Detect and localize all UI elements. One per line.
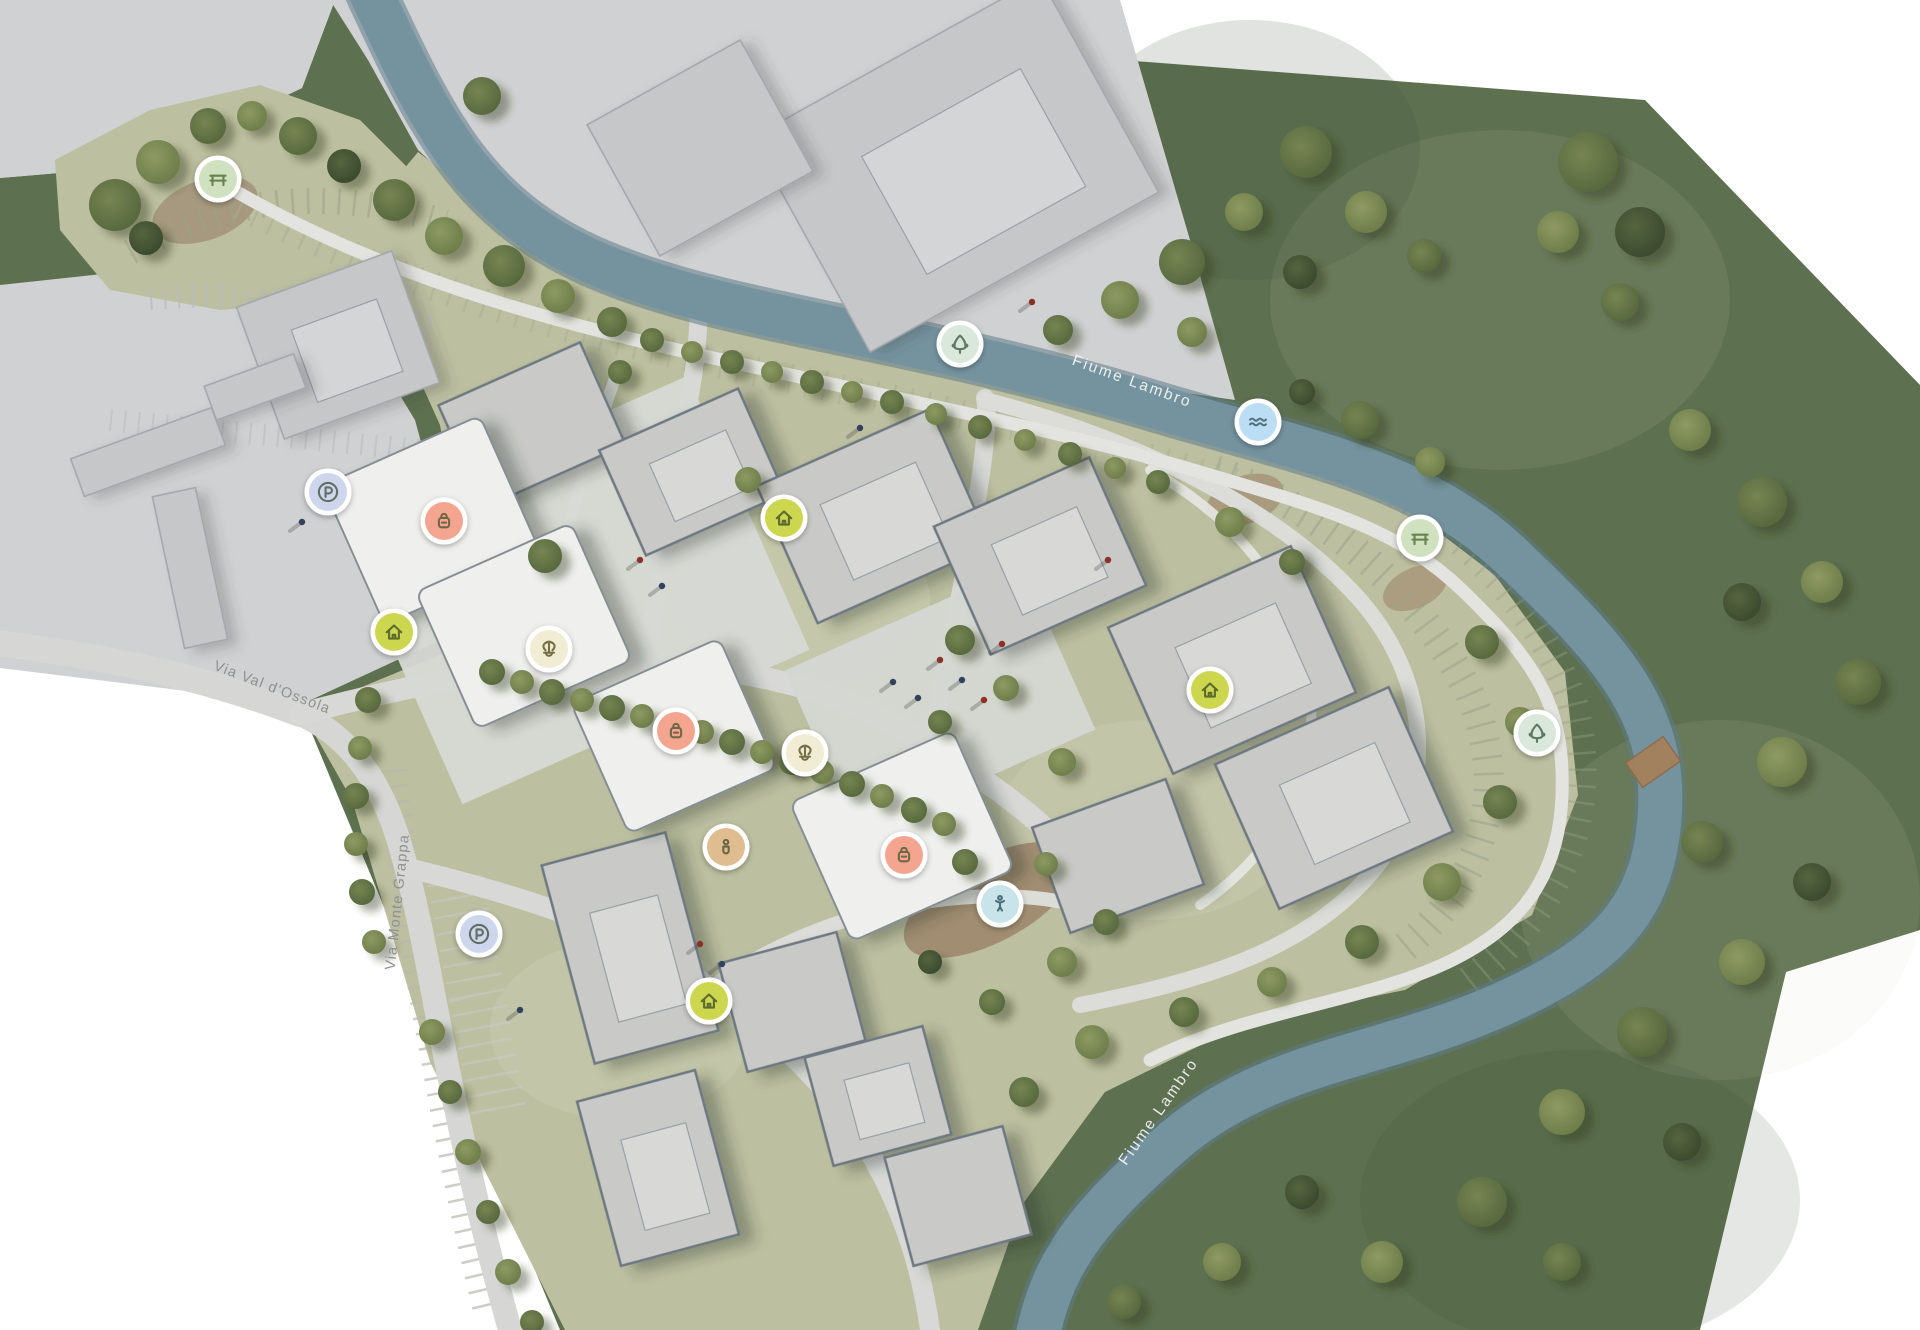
marker-person[interactable]: [703, 824, 750, 871]
masterplan-canvas: Fiume LambroFiume LambroVia Val d'Ossola…: [0, 0, 1920, 1330]
tree: [1719, 939, 1765, 985]
marker-home[interactable]: [761, 495, 808, 542]
tree: [510, 670, 534, 694]
tree: [1043, 315, 1073, 345]
tree: [419, 1019, 445, 1045]
tree: [720, 350, 744, 374]
tree: [925, 403, 947, 425]
tree: [945, 625, 975, 655]
tree: [344, 832, 368, 856]
tree: [932, 812, 956, 836]
marker-shop[interactable]: [421, 498, 468, 545]
marker-parking[interactable]: [305, 469, 352, 516]
tree: [89, 179, 141, 231]
tree: [1723, 583, 1761, 621]
marker-shop[interactable]: [881, 832, 928, 879]
tree: [1345, 191, 1387, 233]
tree: [918, 950, 942, 974]
tree: [1107, 1285, 1141, 1319]
tree: [541, 279, 575, 313]
tree: [539, 679, 565, 705]
tree: [841, 381, 863, 403]
tree: [570, 688, 594, 712]
tree: [1801, 561, 1843, 603]
tree: [1423, 863, 1461, 901]
tree: [599, 695, 625, 721]
tree: [483, 245, 525, 287]
tree: [349, 879, 375, 905]
tree: [968, 415, 992, 439]
tree: [190, 108, 226, 144]
tree: [1601, 283, 1639, 321]
tree: [1737, 477, 1787, 527]
tree: [348, 736, 372, 760]
tree: [1280, 126, 1332, 178]
marker-fountain[interactable]: [526, 626, 573, 673]
tree: [1101, 281, 1139, 319]
tree: [750, 740, 774, 764]
marker-tree[interactable]: [937, 321, 984, 368]
marker-tree[interactable]: [1514, 710, 1561, 757]
tree: [373, 179, 415, 221]
tree: [136, 140, 180, 184]
tree: [495, 1259, 521, 1285]
tree: [1539, 1089, 1585, 1135]
marker-water[interactable]: [1235, 399, 1282, 446]
tree: [1681, 821, 1723, 863]
tree: [425, 217, 463, 255]
tree: [640, 328, 664, 352]
tree: [1047, 947, 1077, 977]
tree: [761, 361, 783, 383]
tree: [1104, 457, 1126, 479]
tree: [608, 360, 632, 384]
marker-home[interactable]: [1187, 667, 1234, 714]
tree: [1283, 255, 1317, 289]
tree: [1757, 737, 1807, 787]
tree: [1345, 925, 1379, 959]
tree: [479, 659, 505, 685]
tree: [1285, 1175, 1319, 1209]
tree: [1537, 211, 1579, 253]
tree: [928, 710, 952, 734]
tree: [1289, 379, 1315, 405]
tree: [1615, 207, 1665, 257]
tree: [1543, 1243, 1581, 1281]
marker-playground[interactable]: [977, 881, 1024, 928]
tree: [1034, 852, 1058, 876]
tree: [1341, 401, 1379, 439]
tree: [455, 1139, 481, 1165]
tree: [1075, 1025, 1109, 1059]
tree: [1009, 1077, 1039, 1107]
tree: [1361, 1241, 1403, 1283]
tree: [1093, 909, 1119, 935]
marker-bench[interactable]: [1397, 515, 1444, 562]
tree: [528, 539, 562, 573]
tree: [880, 390, 904, 414]
tree: [1663, 1123, 1701, 1161]
tree: [438, 1080, 462, 1104]
tree: [1225, 193, 1263, 231]
tree: [1415, 447, 1445, 477]
tree: [362, 930, 386, 954]
tree: [1058, 442, 1082, 466]
tree: [1793, 863, 1831, 901]
tree: [1146, 470, 1170, 494]
tree: [681, 341, 703, 363]
tree: [719, 729, 745, 755]
tree: [1177, 317, 1207, 347]
tree: [1669, 409, 1711, 451]
tree: [1215, 507, 1245, 537]
marker-home[interactable]: [686, 978, 733, 1025]
marker-fountain[interactable]: [782, 730, 829, 777]
tree: [1465, 625, 1499, 659]
tree: [1483, 785, 1517, 819]
tree: [839, 771, 865, 797]
tree: [279, 117, 317, 155]
tree: [1457, 1177, 1507, 1227]
marker-parking[interactable]: [456, 911, 503, 958]
tree: [735, 467, 761, 493]
marker-home[interactable]: [371, 609, 418, 656]
tree: [1279, 549, 1305, 575]
tree: [870, 784, 894, 808]
tree: [1407, 239, 1441, 273]
tree: [1159, 239, 1205, 285]
tree: [237, 101, 267, 131]
tree: [901, 797, 927, 823]
tree: [1048, 748, 1076, 776]
tree: [476, 1200, 500, 1224]
tree: [979, 989, 1005, 1015]
tree: [952, 849, 978, 875]
tree: [343, 783, 369, 809]
tree: [1617, 1007, 1667, 1057]
tree: [355, 687, 381, 713]
tree: [993, 675, 1019, 701]
tree: [520, 1310, 544, 1330]
tree: [1014, 429, 1036, 451]
tree: [630, 704, 654, 728]
tree: [129, 221, 163, 255]
tree: [1558, 132, 1618, 192]
tree: [327, 149, 361, 183]
tree: [597, 307, 627, 337]
tree: [1169, 997, 1199, 1027]
masterplan-map: Fiume LambroFiume LambroVia Val d'Ossola…: [0, 0, 1920, 1330]
tree: [1203, 1243, 1241, 1281]
marker-shop[interactable]: [653, 708, 700, 755]
tree: [463, 77, 501, 115]
tree: [1257, 967, 1287, 997]
tree: [1835, 659, 1881, 705]
tree: [800, 370, 824, 394]
marker-bench[interactable]: [195, 156, 242, 203]
